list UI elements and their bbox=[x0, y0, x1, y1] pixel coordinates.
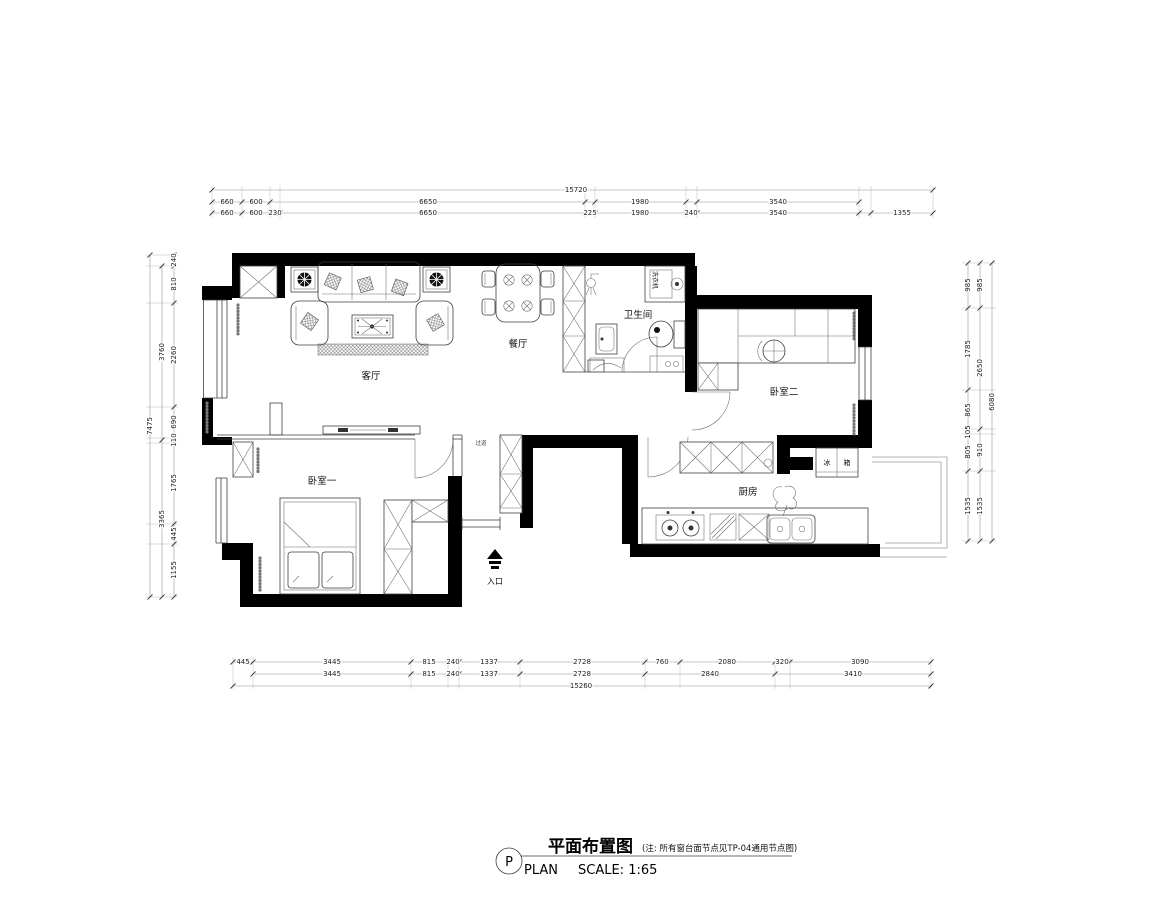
dim-label: 2728 bbox=[573, 670, 591, 678]
fridge: 冰 箱 bbox=[816, 443, 858, 477]
entrance-label: 入口 bbox=[487, 577, 503, 586]
dim-label: 690 bbox=[170, 415, 178, 428]
plan-title-note: (注: 所有窗台面节点见TP-04通用节点图) bbox=[642, 843, 797, 854]
dim-label: 2650 bbox=[976, 359, 984, 377]
dim-label: 1337 bbox=[480, 658, 498, 666]
dim-label: 1980 bbox=[631, 198, 649, 206]
niche-cabinet bbox=[233, 442, 258, 477]
dim-label: 3540 bbox=[769, 198, 787, 206]
dim-label: 1535 bbox=[976, 497, 984, 515]
dim-label: 6080 bbox=[988, 393, 996, 411]
dim-label: 2260 bbox=[170, 346, 178, 364]
sofa bbox=[318, 262, 420, 302]
dim-label: 445 bbox=[170, 527, 178, 540]
dim-label: 815 bbox=[422, 670, 435, 678]
dim-label: 3760 bbox=[158, 343, 166, 361]
title-block: P 平面布置图 (注: 所有窗台面节点见TP-04通用节点图) PLAN SCA… bbox=[496, 836, 797, 878]
room-label-bathroom: 卫生间 bbox=[624, 309, 653, 321]
room-label-hallway: 过道 bbox=[476, 439, 487, 447]
coffee-table bbox=[352, 315, 393, 338]
furniture: 洗衣机 冰 箱 bbox=[280, 262, 868, 594]
room-label-kitchen: 厨房 bbox=[738, 486, 757, 498]
dim-label: 15260 bbox=[570, 682, 592, 690]
bedroom1-door bbox=[415, 439, 453, 478]
dimensions-left: 7475 3760 3365 240 810 2260 690 110 1765… bbox=[146, 253, 178, 600]
dim-label: 6650 bbox=[419, 209, 437, 217]
dim-label: 985 bbox=[976, 278, 984, 291]
fridge-label: 箱 bbox=[844, 458, 851, 467]
toilet bbox=[649, 321, 685, 348]
dim-label: 230 bbox=[268, 209, 281, 217]
dim-label: 600 bbox=[249, 209, 262, 217]
wardrobe-bedroom1 bbox=[384, 500, 448, 594]
dim-label: 6650 bbox=[419, 198, 437, 206]
entrance-threshold bbox=[462, 517, 500, 530]
dim-label: 985 bbox=[964, 278, 972, 291]
dim-label: 2728 bbox=[573, 658, 591, 666]
desk-chair bbox=[758, 340, 785, 362]
fridge-label: 冰 bbox=[824, 458, 831, 467]
dim-label: 3090 bbox=[851, 658, 869, 666]
tall-cabinet bbox=[563, 266, 585, 372]
dim-label: 1765 bbox=[170, 474, 178, 492]
dish-rack bbox=[710, 514, 736, 540]
dim-label: 15720 bbox=[565, 186, 587, 194]
bed bbox=[280, 498, 360, 594]
dim-label: 240 bbox=[684, 209, 697, 217]
dim-label: 1355 bbox=[893, 209, 911, 217]
dim-label: 600 bbox=[249, 198, 262, 206]
floor-plan-sheet: 15720 660 600 6650 1980 3540 660 600 230… bbox=[0, 0, 1159, 915]
dimensions-top: 15720 660 600 6650 1980 3540 660 600 230… bbox=[210, 186, 936, 218]
shaft bbox=[240, 266, 277, 298]
dim-label: 240 bbox=[446, 658, 459, 666]
dim-label: 3540 bbox=[769, 209, 787, 217]
room-label-bedroom2: 卧室二 bbox=[770, 386, 799, 398]
dim-label: 910 bbox=[976, 443, 984, 456]
dimensions-right: 985 1785 865 105 805 1535 985 2650 910 1… bbox=[962, 261, 996, 544]
plan-marker: P bbox=[505, 855, 513, 870]
dim-label: 240 bbox=[170, 253, 178, 266]
plan-scale: SCALE: 1:65 bbox=[578, 863, 657, 878]
dim-label: 660 bbox=[220, 198, 233, 206]
dining-chairs bbox=[482, 271, 554, 315]
dim-label: 320 bbox=[775, 658, 788, 666]
bath-cabinet bbox=[650, 356, 683, 372]
room-label-living: 客厅 bbox=[361, 370, 381, 382]
dim-label: 865 bbox=[964, 403, 972, 416]
dim-label: 1980 bbox=[631, 209, 649, 217]
dim-label: 1535 bbox=[964, 497, 972, 515]
shoe-cabinet bbox=[500, 435, 522, 513]
floor-plan-drawing: 15720 660 600 6650 1980 3540 660 600 230… bbox=[0, 0, 1159, 915]
balcony-outline bbox=[872, 457, 947, 557]
dim-label: 3445 bbox=[323, 658, 341, 666]
armchair-right bbox=[416, 301, 453, 345]
plan-title-en: PLAN bbox=[524, 863, 558, 878]
dim-label: 1155 bbox=[170, 561, 178, 579]
dim-label: 760 bbox=[655, 658, 668, 666]
dim-label: 225 bbox=[583, 209, 596, 217]
dim-label: 1785 bbox=[964, 340, 972, 358]
kitchen-upper-cabinets bbox=[680, 442, 773, 473]
dim-label: 105 bbox=[964, 425, 972, 438]
base-cabinet bbox=[739, 514, 769, 540]
dim-label: 240 bbox=[446, 670, 459, 678]
shower-head-icon bbox=[586, 274, 599, 295]
side-table-plant-right bbox=[423, 267, 450, 292]
dim-label: 3365 bbox=[158, 510, 166, 528]
column bbox=[270, 403, 282, 435]
washer-label: 洗衣机 bbox=[651, 271, 659, 289]
washing-machine: 洗衣机 bbox=[645, 266, 685, 302]
room-label-bedroom1: 卧室一 bbox=[308, 475, 337, 487]
dim-label: 2840 bbox=[701, 670, 719, 678]
shower-curb bbox=[588, 360, 604, 372]
plan-title-cn: 平面布置图 bbox=[548, 836, 633, 857]
dim-label: 110 bbox=[170, 433, 178, 446]
side-table-plant-left bbox=[291, 267, 318, 292]
bedroom2-desk bbox=[698, 309, 855, 363]
dim-label: 1337 bbox=[480, 670, 498, 678]
dining-table bbox=[482, 264, 554, 322]
dim-label: 7475 bbox=[146, 417, 154, 435]
bedroom2-wardrobe bbox=[698, 363, 738, 390]
tv-console bbox=[323, 426, 420, 434]
dim-label: 3445 bbox=[323, 670, 341, 678]
dim-label: 2080 bbox=[718, 658, 736, 666]
vanity-sink bbox=[596, 324, 617, 354]
dim-label: 805 bbox=[964, 445, 972, 458]
double-sink bbox=[767, 515, 815, 543]
armchair-left bbox=[291, 301, 328, 345]
rug bbox=[318, 344, 428, 355]
faucet-sprayer bbox=[773, 486, 797, 516]
entrance-mark: 入口 bbox=[487, 549, 503, 586]
dim-label: 3410 bbox=[844, 670, 862, 678]
entrance-arrow-icon bbox=[487, 549, 503, 559]
dim-label: 445 bbox=[236, 658, 249, 666]
dim-label: 660 bbox=[220, 209, 233, 217]
kitchen-counter bbox=[642, 508, 868, 544]
dimensions-bottom: 445 3445 815 240 1337 2728 760 2080 320 … bbox=[231, 657, 934, 690]
stove bbox=[656, 511, 704, 540]
dim-label: 815 bbox=[422, 658, 435, 666]
room-label-dining: 餐厅 bbox=[508, 338, 528, 350]
dim-label: 810 bbox=[170, 277, 178, 290]
bedroom2-door bbox=[692, 392, 730, 430]
